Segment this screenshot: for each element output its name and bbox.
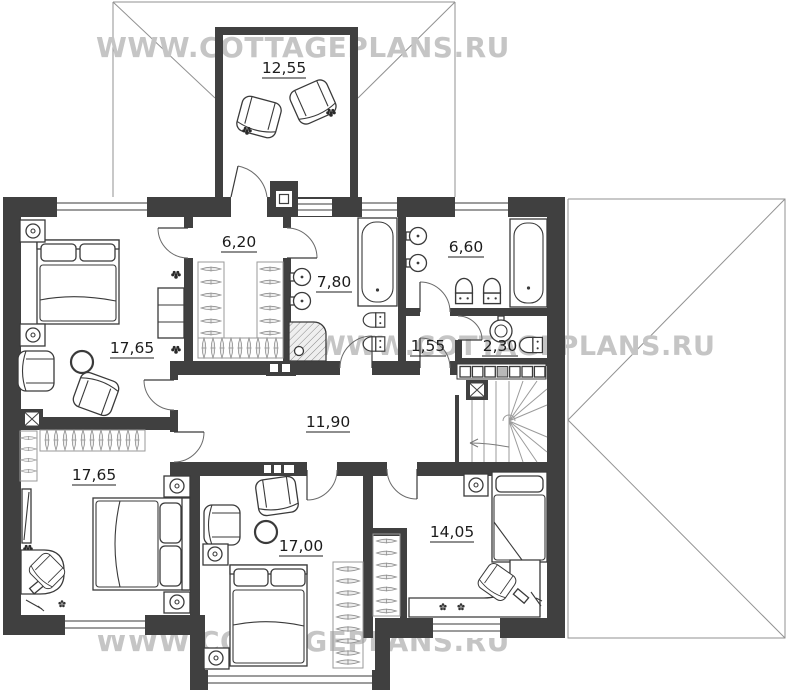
door-wardrobe-bathroom [287,228,317,258]
wardrobe-furniture [198,262,283,358]
label-bedroom-left: 17,65 [72,466,116,484]
window-top-2 [362,197,397,217]
shower [289,322,326,361]
double-bed [37,240,119,324]
bidet [484,278,501,303]
nightstand [164,592,190,613]
window-balcony-light [298,199,332,216]
label-bathroom: 6,60 [449,238,484,256]
double-bed [230,565,307,666]
wall-sink [406,228,427,245]
corner-desk [409,560,542,617]
toilet [520,337,543,352]
double-bed [93,498,190,590]
bathroom-fixtures [406,219,547,307]
balcony-door-opening [231,197,267,217]
door-hall-master-bedroom [144,380,174,410]
round-table [255,521,277,543]
door-hall-bedroom-right [387,469,417,499]
wall-sink [406,255,427,272]
window-bottom-left [65,615,145,635]
nightstand [204,648,229,669]
armchair [235,94,283,139]
chimney-block-hall [266,361,296,376]
label-wc: 2,30 [483,337,518,355]
armchair [204,505,240,545]
toilet [363,313,385,327]
single-bed [492,472,547,562]
nightstand [20,324,45,346]
window-bottom-right [433,618,500,638]
stair-direction-arrow [470,439,509,447]
window-top-3 [455,197,508,217]
door-hall-bedroom-left [174,432,204,462]
armchair [71,370,121,418]
wall-sink [290,293,311,310]
label-lobby: 1,55 [411,337,446,355]
floor-plan-page: WWW.COTTAGEPLANS.RU WWW.COTTAGEPLANS.RU … [0,0,788,693]
toilet [456,278,473,303]
label-wardrobe: 6,20 [222,233,257,251]
floor-plan-canvas: WWW.COTTAGEPLANS.RU WWW.COTTAGEPLANS.RU … [0,0,788,693]
label-master-bedroom: 17,65 [110,339,154,357]
closet-rack [373,534,400,616]
armchair [255,475,300,516]
mirror [22,489,31,543]
bidet [363,337,385,351]
door-balcony [231,166,267,197]
tv-unit [260,462,298,476]
dresser [158,288,184,338]
bathtub [510,219,547,307]
label-bedroom-right: 14,05 [430,523,474,541]
bathtub [358,218,397,306]
vent-shaft-icon [466,380,488,400]
armchair [287,77,338,126]
window-bay [208,670,372,690]
door-bedroom-wardrobe [158,228,188,258]
master-bedroom-furniture [18,220,184,418]
nightstand [164,476,190,497]
armchair [18,351,54,391]
nightstand [203,544,228,565]
wall-sink [290,269,311,286]
staircase [457,364,547,462]
label-master-bath: 7,80 [317,273,352,291]
bedroom-right-furniture [373,472,547,617]
round-table [71,351,93,373]
label-balcony: 12,55 [262,59,306,77]
flower-icon [58,600,65,607]
stair-railing [457,364,546,379]
door-lobby-bathroom [420,282,450,312]
nightstand [20,220,45,242]
pen-icon [26,600,44,611]
door-hall-bedroom-middle [307,470,337,500]
plant-icon [171,271,181,279]
bedroom-left-furniture [20,430,190,613]
label-bedroom-middle: 17,00 [279,537,323,555]
chimney-balcony [270,181,298,217]
nightstand [464,474,488,496]
window-top-1 [57,197,147,217]
vent-shaft-icon [21,409,43,429]
balcony-furniture [235,77,339,139]
plant-icon [171,346,181,354]
label-hall: 11,90 [306,413,350,431]
